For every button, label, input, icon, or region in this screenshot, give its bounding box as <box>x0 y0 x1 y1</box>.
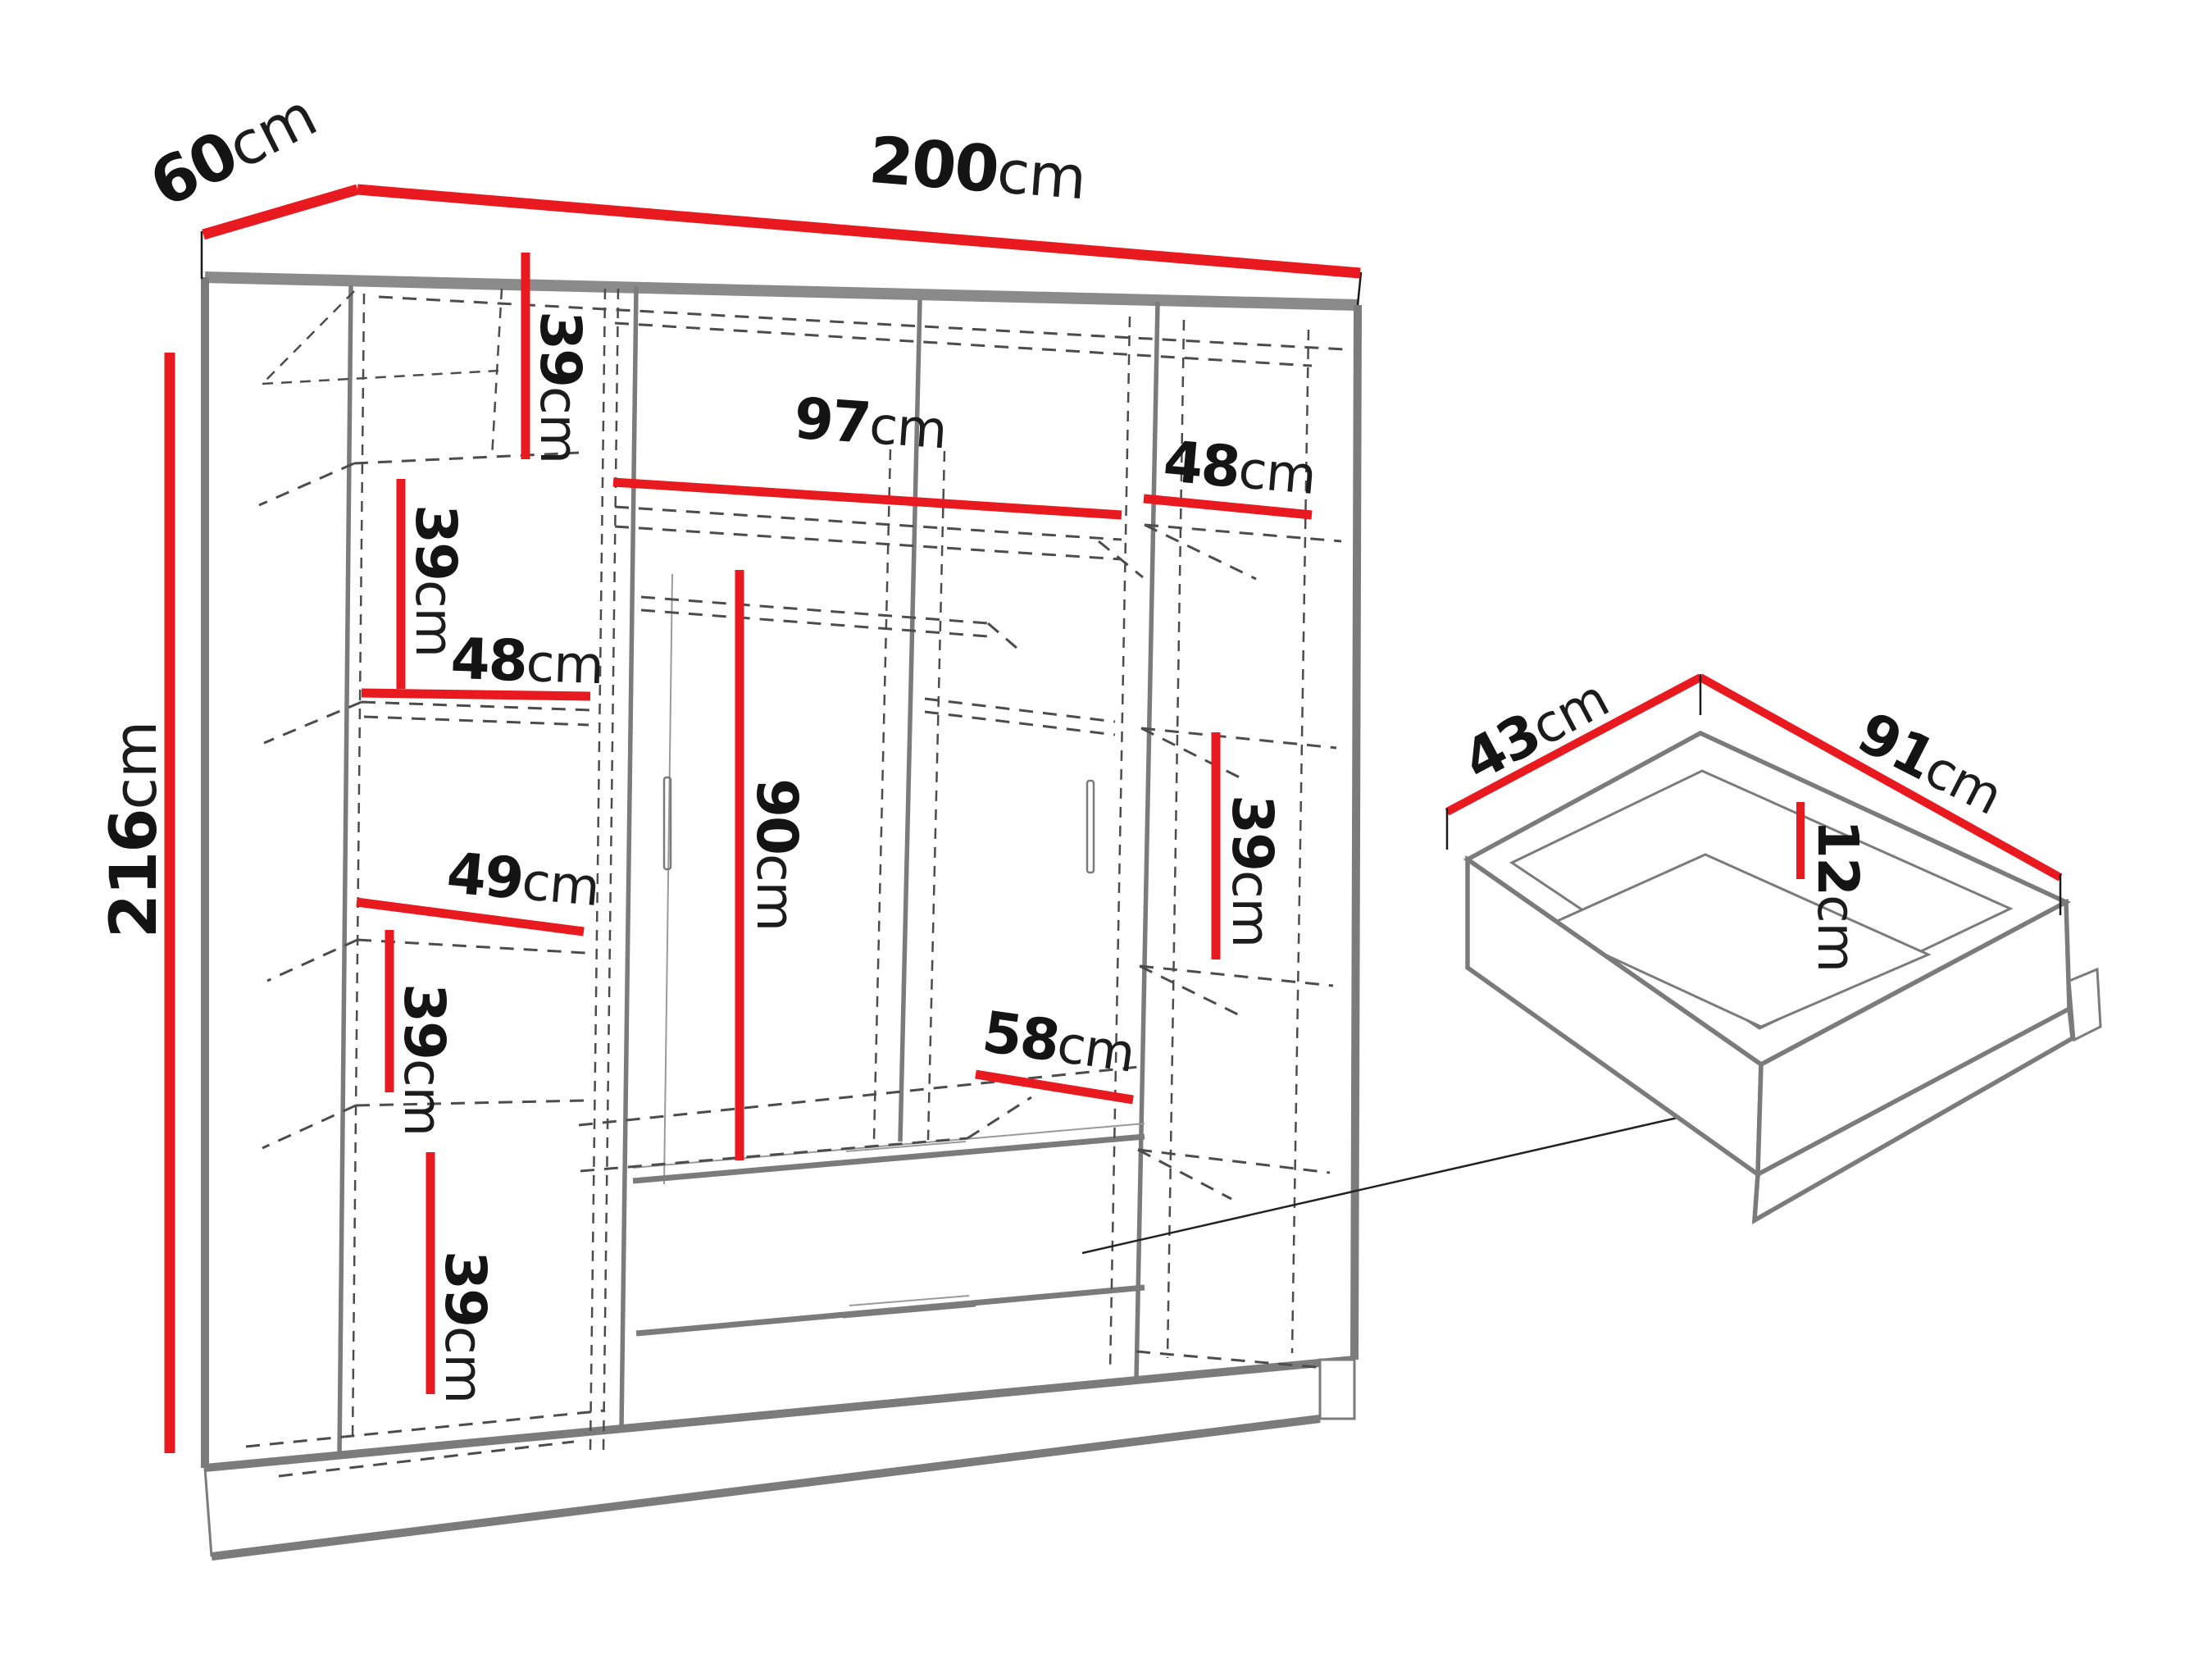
furniture-dimension-diagram: 60cm 200cm 216cm 39cm 39cm 48cm 49cm 39c… <box>0 0 2212 1659</box>
dim-label-left-39-3: 39cm <box>391 983 457 1136</box>
dim-label-left-39-4: 39cm <box>432 1251 498 1403</box>
drawer-detail: 43cm 91cm 12cm <box>1447 665 2100 1220</box>
dim-label-drawer-depth: 43cm <box>1453 665 1618 795</box>
dim-label-depth: 60cm <box>139 78 327 223</box>
dim-label-middle-90: 90cm <box>744 778 809 931</box>
dim-label-height: 216cm <box>98 722 171 939</box>
drawer-runner-foot <box>2069 969 2100 1040</box>
dim-label-width: 200cm <box>867 124 1089 214</box>
dim-label-drawer-height: 12cm <box>1805 819 1870 972</box>
diagram-canvas: 60cm 200cm 216cm 39cm 39cm 48cm 49cm 39c… <box>0 0 2212 1659</box>
dim-label-right-39: 39cm <box>1219 795 1285 947</box>
dim-label-left-48: 48cm <box>449 627 604 697</box>
right-edge <box>1354 305 1358 1360</box>
dim-label-left-39-1: 39cm <box>527 311 593 463</box>
right-foot <box>1320 1360 1354 1419</box>
